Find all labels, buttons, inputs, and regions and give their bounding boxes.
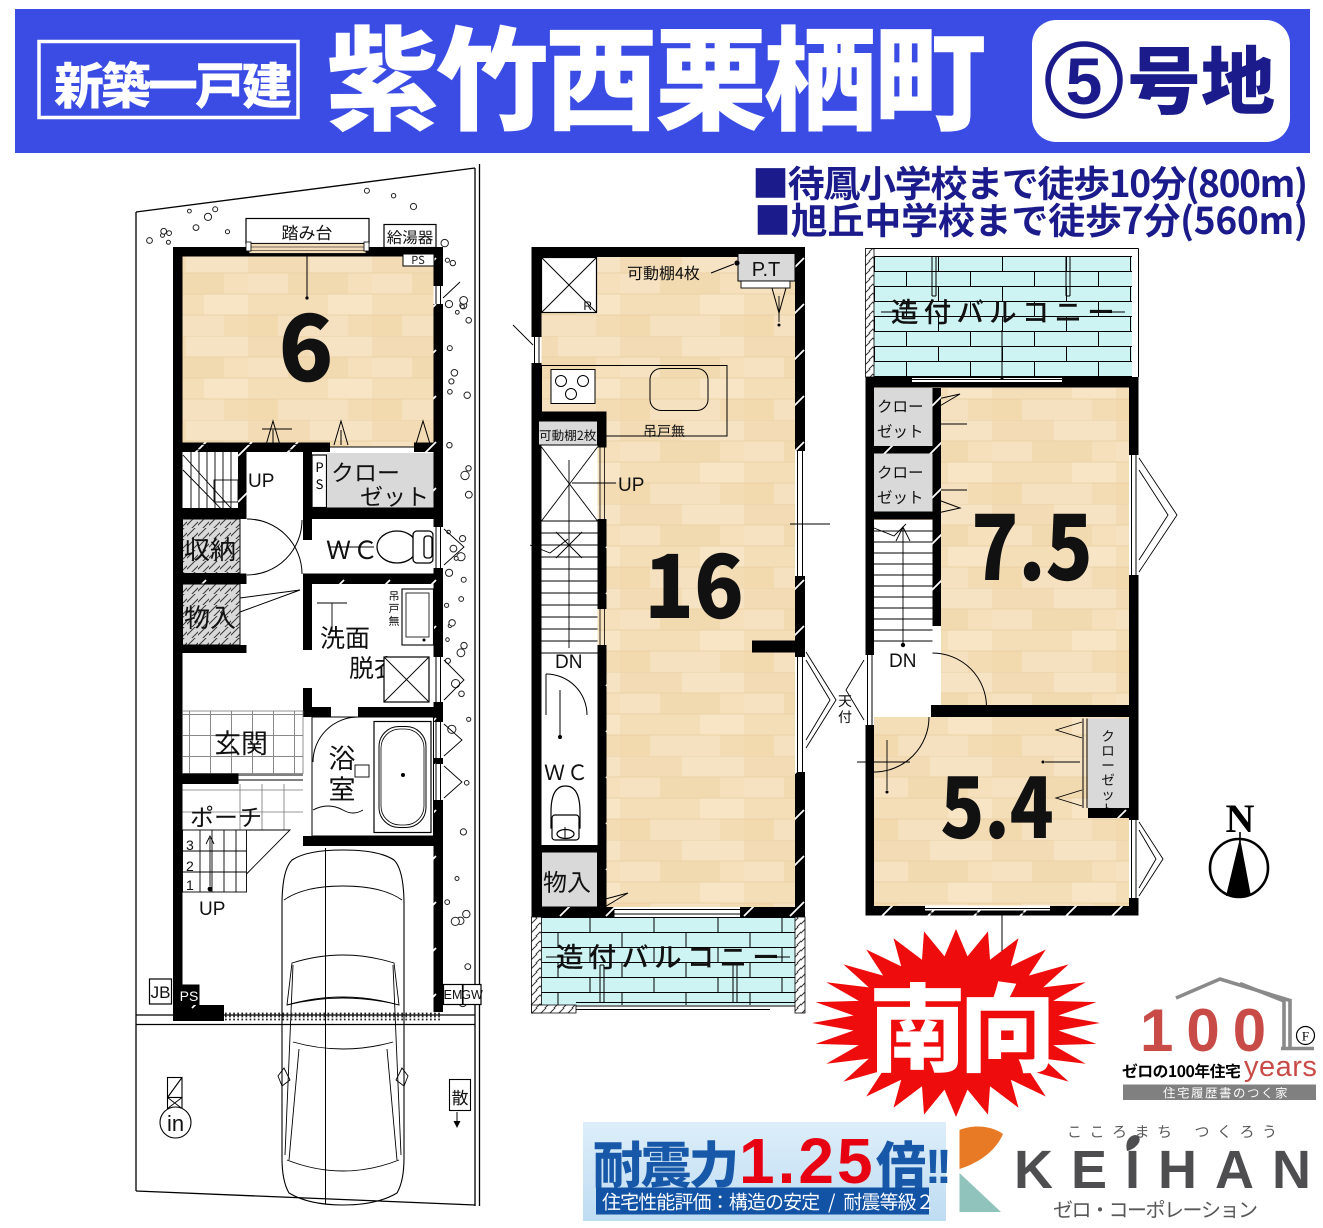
svg-text:DN: DN	[889, 651, 916, 672]
svg-text:P.T: P.T	[752, 259, 781, 281]
svg-text:PS: PS	[180, 988, 199, 1004]
svg-text:F: F	[1302, 1029, 1309, 1044]
svg-text:!!: !!	[925, 1141, 948, 1194]
svg-text:3: 3	[186, 837, 194, 853]
svg-text:UP: UP	[248, 471, 274, 492]
svg-text:R: R	[583, 299, 592, 313]
svg-text:1.25: 1.25	[739, 1125, 876, 1197]
svg-text:GW: GW	[461, 988, 483, 1002]
svg-text:in: in	[167, 1111, 184, 1136]
svg-text:JB: JB	[151, 983, 171, 1002]
svg-text:2: 2	[186, 858, 194, 874]
svg-text:UP: UP	[199, 899, 225, 920]
svg-text:KEIHAN: KEIHAN	[1014, 1140, 1323, 1200]
svg-text:DN: DN	[555, 652, 582, 673]
svg-text:UP: UP	[618, 475, 644, 496]
svg-text:5: 5	[1066, 44, 1103, 118]
svg-text:EM: EM	[444, 988, 463, 1002]
svg-text:1: 1	[186, 877, 194, 893]
svg-text:years: years	[1244, 1051, 1317, 1083]
